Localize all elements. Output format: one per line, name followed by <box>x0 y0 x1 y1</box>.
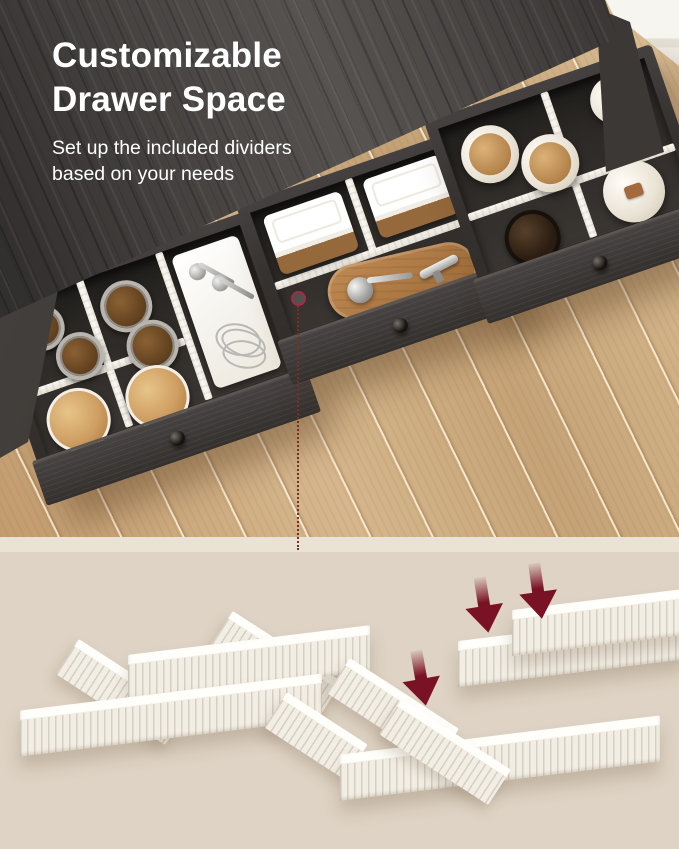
arrow-head <box>465 603 507 636</box>
canister-wood-lid <box>453 117 527 191</box>
leather-tag <box>623 182 644 200</box>
wood-lid <box>463 128 516 181</box>
insert-arrow-icon <box>515 561 560 622</box>
drawer-left-knob <box>168 429 187 448</box>
callout-ring <box>291 291 306 306</box>
arrow-tail <box>410 649 427 681</box>
drawer-middle-knob <box>391 316 410 335</box>
arrow-tail <box>474 576 491 608</box>
top-band <box>0 537 679 552</box>
title-line1: Customizable <box>52 36 282 75</box>
insert-arrow-icon <box>461 574 507 635</box>
title: Customizable Drawer Space <box>52 34 292 122</box>
subtitle-line1: Set up the included dividers <box>52 137 292 159</box>
diagram-section <box>0 537 679 849</box>
headline: Customizable Drawer Space Set up the inc… <box>52 34 292 187</box>
product-image: Customizable Drawer Space Set up the inc… <box>0 0 679 849</box>
subtitle: Set up the included dividers based on yo… <box>52 135 292 187</box>
arrow-head <box>519 589 560 621</box>
callout-dotted-line <box>297 306 299 550</box>
title-line2: Drawer Space <box>52 80 286 119</box>
wood-lid <box>524 136 577 189</box>
arrow-head <box>402 676 444 709</box>
photo-section: Customizable Drawer Space Set up the inc… <box>0 0 679 537</box>
arrow-tail <box>528 562 544 593</box>
drawer-right-knob <box>590 253 609 272</box>
subtitle-line2: based on your needs <box>52 163 234 185</box>
